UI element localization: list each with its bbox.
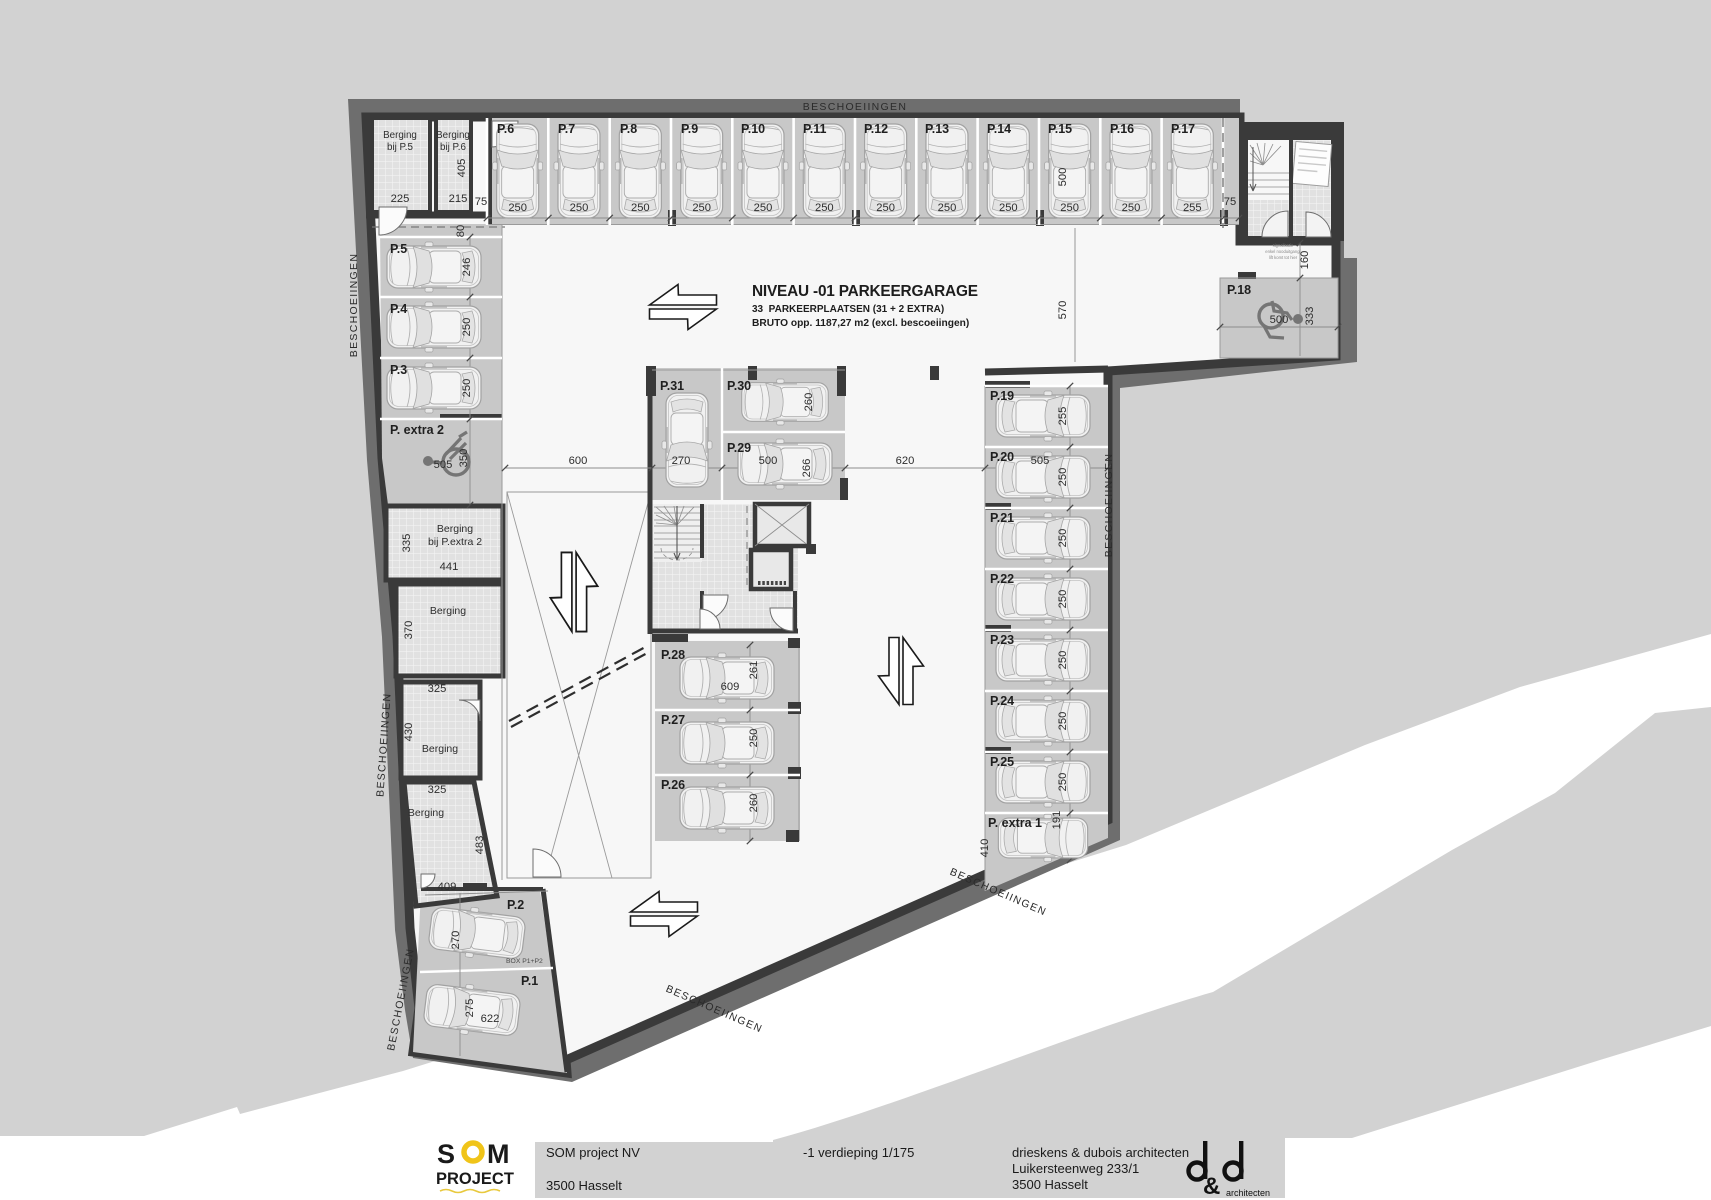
svg-text:255: 255	[1183, 202, 1202, 214]
svg-text:250: 250	[938, 202, 957, 214]
svg-text:bij P.5: bij P.5	[387, 142, 414, 153]
svg-text:250: 250	[692, 202, 711, 214]
svg-text:325: 325	[428, 784, 447, 796]
svg-text:500: 500	[1270, 314, 1289, 326]
svg-text:P.4: P.4	[390, 302, 407, 316]
svg-text:P.12: P.12	[864, 122, 888, 136]
svg-text:266: 266	[801, 459, 813, 478]
svg-text:33 PARKEERPLAATSEN (31 + 2 EX: 33 PARKEERPLAATSEN (31 + 2 EXTRA)	[752, 304, 944, 315]
svg-text:P.21: P.21	[990, 511, 1014, 525]
svg-text:250: 250	[1057, 468, 1069, 487]
svg-text:430: 430	[403, 723, 415, 742]
svg-text:250: 250	[815, 202, 834, 214]
svg-text:P.1: P.1	[521, 974, 538, 988]
svg-text:M: M	[487, 1139, 510, 1169]
svg-text:225: 225	[391, 193, 410, 205]
svg-text:P. extra 1: P. extra 1	[988, 816, 1042, 830]
svg-text:P.14: P.14	[987, 122, 1011, 136]
svg-text:500: 500	[759, 455, 778, 467]
svg-text:Berging: Berging	[437, 523, 473, 535]
svg-text:PROJECT: PROJECT	[436, 1170, 514, 1188]
svg-text:bij P.extra 2: bij P.extra 2	[428, 536, 482, 548]
svg-text:160: 160	[1299, 251, 1311, 270]
svg-text:BRUTO opp. 1187,27 m2 (excl. b: BRUTO opp. 1187,27 m2 (excl. bescoeiinge…	[752, 318, 969, 329]
svg-text:260: 260	[748, 794, 760, 813]
svg-text:P.8: P.8	[620, 122, 637, 136]
svg-text:P.6: P.6	[497, 122, 514, 136]
svg-text:P.11: P.11	[803, 122, 826, 136]
svg-text:Berging: Berging	[430, 605, 466, 617]
svg-text:enkel nooduitgang/: enkel nooduitgang/	[1265, 249, 1301, 254]
svg-text:250: 250	[748, 729, 760, 748]
svg-text:483: 483	[474, 836, 486, 855]
svg-text:P.28: P.28	[661, 648, 685, 662]
svg-text:500: 500	[1057, 168, 1069, 187]
svg-text:P.26: P.26	[661, 778, 685, 792]
svg-text:Berging: Berging	[422, 743, 458, 755]
svg-text:BOX P1+P2: BOX P1+P2	[506, 958, 543, 965]
svg-text:333: 333	[1304, 307, 1316, 326]
svg-text:250: 250	[1060, 202, 1079, 214]
svg-text:600: 600	[569, 455, 588, 467]
svg-text:P.27: P.27	[661, 713, 685, 727]
svg-text:P.15: P.15	[1048, 122, 1072, 136]
svg-text:Berging: Berging	[436, 130, 470, 141]
svg-text:BESCHOEIINGEN: BESCHOEIINGEN	[803, 101, 907, 113]
svg-text:architecten: architecten	[1226, 1188, 1270, 1198]
svg-text:P.31: P.31	[660, 379, 684, 393]
svg-text:P.3: P.3	[390, 363, 407, 377]
svg-text:Luikersteenweg 233/1: Luikersteenweg 233/1	[1012, 1161, 1139, 1176]
svg-text:P.23: P.23	[990, 633, 1014, 647]
svg-text:260: 260	[803, 393, 815, 412]
svg-text:620: 620	[896, 455, 915, 467]
svg-text:SOM project NV: SOM project NV	[546, 1145, 640, 1160]
svg-text:P.22: P.22	[990, 572, 1014, 586]
svg-text:350: 350	[458, 449, 470, 468]
svg-text:505: 505	[1031, 455, 1050, 467]
svg-text:270: 270	[672, 455, 691, 467]
svg-text:250: 250	[461, 379, 473, 398]
svg-text:250: 250	[1057, 590, 1069, 609]
svg-text:405: 405	[456, 159, 468, 178]
svg-text:P.19: P.19	[990, 389, 1014, 403]
svg-text:80: 80	[455, 225, 467, 237]
svg-text:drieskens & dubois architecten: drieskens & dubois architecten	[1012, 1145, 1189, 1160]
svg-text:191: 191	[1051, 811, 1063, 830]
svg-text:P.20: P.20	[990, 450, 1014, 464]
svg-text:250: 250	[1122, 202, 1141, 214]
svg-text:S: S	[437, 1139, 455, 1169]
svg-text:P.16: P.16	[1110, 122, 1134, 136]
svg-text:250: 250	[461, 318, 473, 337]
svg-text:bij P.6: bij P.6	[440, 142, 467, 153]
svg-text:P.9: P.9	[681, 122, 698, 136]
svg-text:P.17: P.17	[1171, 122, 1195, 136]
svg-text:275: 275	[464, 999, 476, 1018]
svg-text:250: 250	[631, 202, 650, 214]
svg-text:BESCHOEIINGEN: BESCHOEIINGEN	[1103, 453, 1115, 557]
svg-text:P. extra 2: P. extra 2	[390, 423, 444, 437]
svg-text:250: 250	[508, 202, 527, 214]
svg-text:P.30: P.30	[727, 379, 751, 393]
svg-text:P.10: P.10	[741, 122, 765, 136]
svg-text:&: &	[1203, 1173, 1220, 1200]
svg-text:335: 335	[401, 534, 413, 553]
svg-text:250: 250	[754, 202, 773, 214]
svg-text:250: 250	[1057, 773, 1069, 792]
svg-text:-1 verdieping 1/175: -1 verdieping 1/175	[803, 1145, 914, 1160]
svg-text:410: 410	[979, 839, 991, 858]
svg-text:P.2: P.2	[507, 898, 524, 912]
svg-text:255: 255	[1057, 407, 1069, 426]
svg-text:246: 246	[461, 258, 473, 277]
svg-text:signalisatie: signalisatie	[1273, 243, 1294, 248]
svg-text:P.25: P.25	[990, 755, 1014, 769]
svg-text:622: 622	[481, 1013, 500, 1025]
svg-text:370: 370	[403, 621, 415, 640]
svg-text:NIVEAU -01 PARKEERGARAGE: NIVEAU -01 PARKEERGARAGE	[752, 283, 978, 300]
svg-text:215: 215	[449, 193, 468, 205]
svg-text:P.29: P.29	[727, 441, 751, 455]
svg-text:P.7: P.7	[558, 122, 575, 136]
svg-text:Berging: Berging	[383, 130, 417, 141]
svg-text:BESCHOEIINGEN: BESCHOEIINGEN	[348, 253, 360, 357]
svg-text:325: 325	[428, 683, 447, 695]
svg-text:250: 250	[876, 202, 895, 214]
svg-text:261: 261	[748, 661, 760, 680]
svg-text:570: 570	[1057, 301, 1069, 320]
svg-text:250: 250	[570, 202, 589, 214]
svg-text:250: 250	[1057, 712, 1069, 731]
svg-text:270: 270	[450, 931, 462, 950]
svg-text:75: 75	[1224, 196, 1236, 208]
svg-text:609: 609	[721, 681, 740, 693]
svg-text:75: 75	[475, 196, 487, 208]
svg-text:P.13: P.13	[925, 122, 949, 136]
svg-text:3500 Hasselt: 3500 Hasselt	[546, 1178, 622, 1193]
svg-text:P.5: P.5	[390, 242, 407, 256]
svg-text:250: 250	[999, 202, 1018, 214]
svg-text:P.18: P.18	[1227, 283, 1251, 297]
svg-text:250: 250	[1057, 529, 1069, 548]
svg-text:lift komt tot hier: lift komt tot hier	[1269, 255, 1298, 260]
svg-text:3500 Hasselt: 3500 Hasselt	[1012, 1177, 1088, 1192]
svg-text:505: 505	[434, 459, 453, 471]
svg-text:P.24: P.24	[990, 694, 1014, 708]
svg-text:Berging: Berging	[408, 807, 444, 819]
svg-text:250: 250	[1057, 651, 1069, 670]
svg-text:409: 409	[438, 881, 457, 893]
svg-text:441: 441	[440, 561, 459, 573]
